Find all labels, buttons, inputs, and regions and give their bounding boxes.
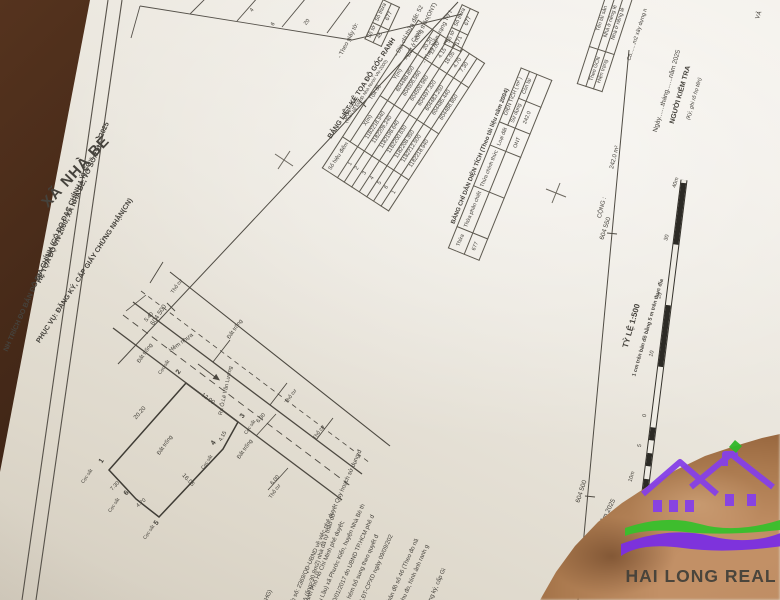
vertex-number: 6 xyxy=(123,489,131,496)
corner-marker-label: Cọc sắt xyxy=(141,523,156,541)
land-label-tho-cu: Thổ cư xyxy=(283,387,298,405)
land-label-dat-trong: Đất trống xyxy=(156,434,174,456)
land-label-dat-trong: Đất trống xyxy=(136,342,154,364)
land-label-tho-cu: Thổ cư xyxy=(169,277,184,295)
logo-wave-purple xyxy=(621,532,780,556)
grid-label: 604 500 xyxy=(575,479,589,504)
vertex-number: 3 xyxy=(239,412,247,419)
corner-marker-label: Cọc sắt xyxy=(79,467,94,485)
edge-dimension: 20.20 xyxy=(133,405,148,421)
road-name-label: Hẻm nhựa xyxy=(168,332,195,354)
sheet-border-lines xyxy=(22,0,122,600)
grid-label: 604 550 xyxy=(599,216,613,241)
vertex-number: 4 xyxy=(210,439,218,446)
scale-tick-label: 0 xyxy=(642,413,649,418)
land-label-tho-cu: Thổ cư xyxy=(311,423,326,441)
vertex-number: 5 xyxy=(153,519,161,526)
corner-marker-label: Cọc sắt xyxy=(199,453,214,471)
watermark-logo: HAI LONG REAL xyxy=(605,432,780,597)
logo-house-icon xyxy=(643,454,773,494)
scale-tick-label: 30 xyxy=(663,234,670,242)
logo-wave-green xyxy=(625,520,780,536)
logo-windows xyxy=(653,494,756,512)
inset-parcel-number: 20 xyxy=(303,18,312,27)
vertex-number: 1 xyxy=(98,457,106,464)
road-direction-arrow-icon xyxy=(198,364,220,381)
inset-parcel-number: 4 xyxy=(249,7,256,13)
road-direction-label: Ra Ô.Lê Văn Lương xyxy=(217,366,234,416)
corner-marker-label: Cọc sắt xyxy=(106,496,121,514)
land-label-dat-trong: Đất trống xyxy=(226,318,244,340)
watermark-brand-text: HAI LONG REAL xyxy=(625,566,776,586)
scale-tick-label: 10 xyxy=(648,350,655,358)
scale-tick-label: 40m xyxy=(672,176,681,188)
photo-of-cadastral-document: 604 500 604 550 604 500 604 550 4 6 20 xyxy=(0,0,780,600)
inset-parcel-number: 6 xyxy=(270,21,277,27)
corner-marker-label: Cọc sắt xyxy=(156,358,171,376)
land-label-dat-trong: Đất trống xyxy=(236,438,254,460)
